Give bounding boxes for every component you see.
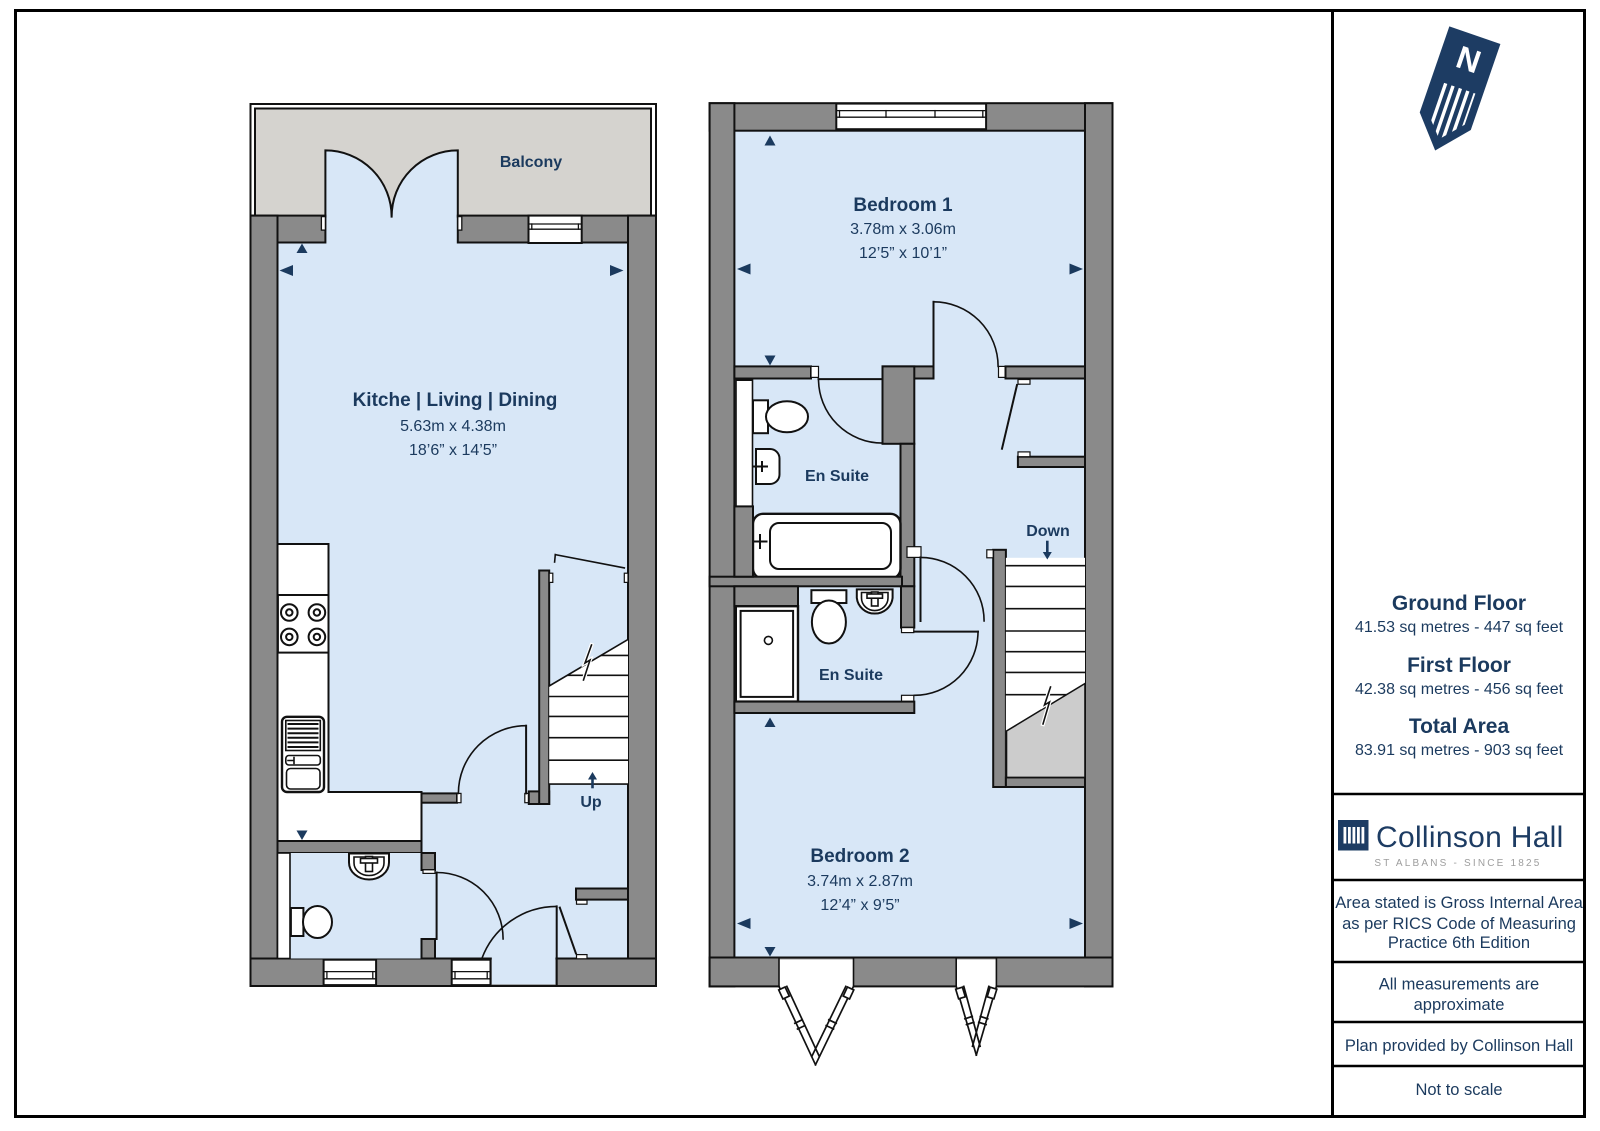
svg-text:41.53 sq metres - 447 sq feet: 41.53 sq metres - 447 sq feet: [1355, 619, 1564, 636]
svg-text:Bedroom 2: Bedroom 2: [810, 846, 909, 867]
svg-text:approximate: approximate: [1414, 996, 1505, 1014]
svg-text:En Suite: En Suite: [805, 468, 869, 485]
svg-text:Down: Down: [1026, 523, 1070, 540]
svg-text:Area stated is Gross Internal: Area stated is Gross Internal Area: [1335, 894, 1583, 912]
svg-text:Total Area: Total Area: [1409, 715, 1510, 738]
svg-text:12’5” x 10’1”: 12’5” x 10’1”: [859, 245, 947, 262]
svg-text:ST ALBANS - SINCE 1825: ST ALBANS - SINCE 1825: [1374, 858, 1541, 869]
svg-text:All measurements are: All measurements are: [1379, 976, 1539, 994]
svg-text:12’4” x 9’5”: 12’4” x 9’5”: [820, 897, 899, 914]
svg-text:Plan provided by Collinson Hal: Plan provided by Collinson Hall: [1345, 1037, 1573, 1055]
svg-text:Balcony: Balcony: [500, 154, 562, 171]
svg-text:Ground Floor: Ground Floor: [1392, 592, 1526, 615]
svg-text:En Suite: En Suite: [819, 667, 883, 684]
svg-text:Kitche | Living | Dining: Kitche | Living | Dining: [353, 390, 558, 411]
svg-text:Up: Up: [580, 794, 602, 811]
svg-text:42.38 sq metres - 456 sq feet: 42.38 sq metres - 456 sq feet: [1355, 681, 1564, 698]
svg-text:Collinson Hall: Collinson Hall: [1376, 821, 1564, 854]
svg-text:18’6” x 14’5”: 18’6” x 14’5”: [409, 442, 497, 459]
svg-text:3.78m x 3.06m: 3.78m x 3.06m: [850, 221, 956, 238]
svg-text:Bedroom 1: Bedroom 1: [853, 195, 953, 216]
svg-text:5.63m x 4.38m: 5.63m x 4.38m: [400, 418, 506, 435]
svg-text:as per RICS Code of Measuring: as per RICS Code of Measuring: [1342, 915, 1576, 933]
svg-text:Not to scale: Not to scale: [1415, 1081, 1502, 1099]
svg-text:3.74m x 2.87m: 3.74m x 2.87m: [807, 873, 913, 890]
svg-text:First Floor: First Floor: [1407, 654, 1511, 677]
svg-text:Practice 6th Edition: Practice 6th Edition: [1388, 934, 1530, 952]
svg-text:83.91 sq metres - 903 sq feet: 83.91 sq metres - 903 sq feet: [1355, 742, 1564, 759]
